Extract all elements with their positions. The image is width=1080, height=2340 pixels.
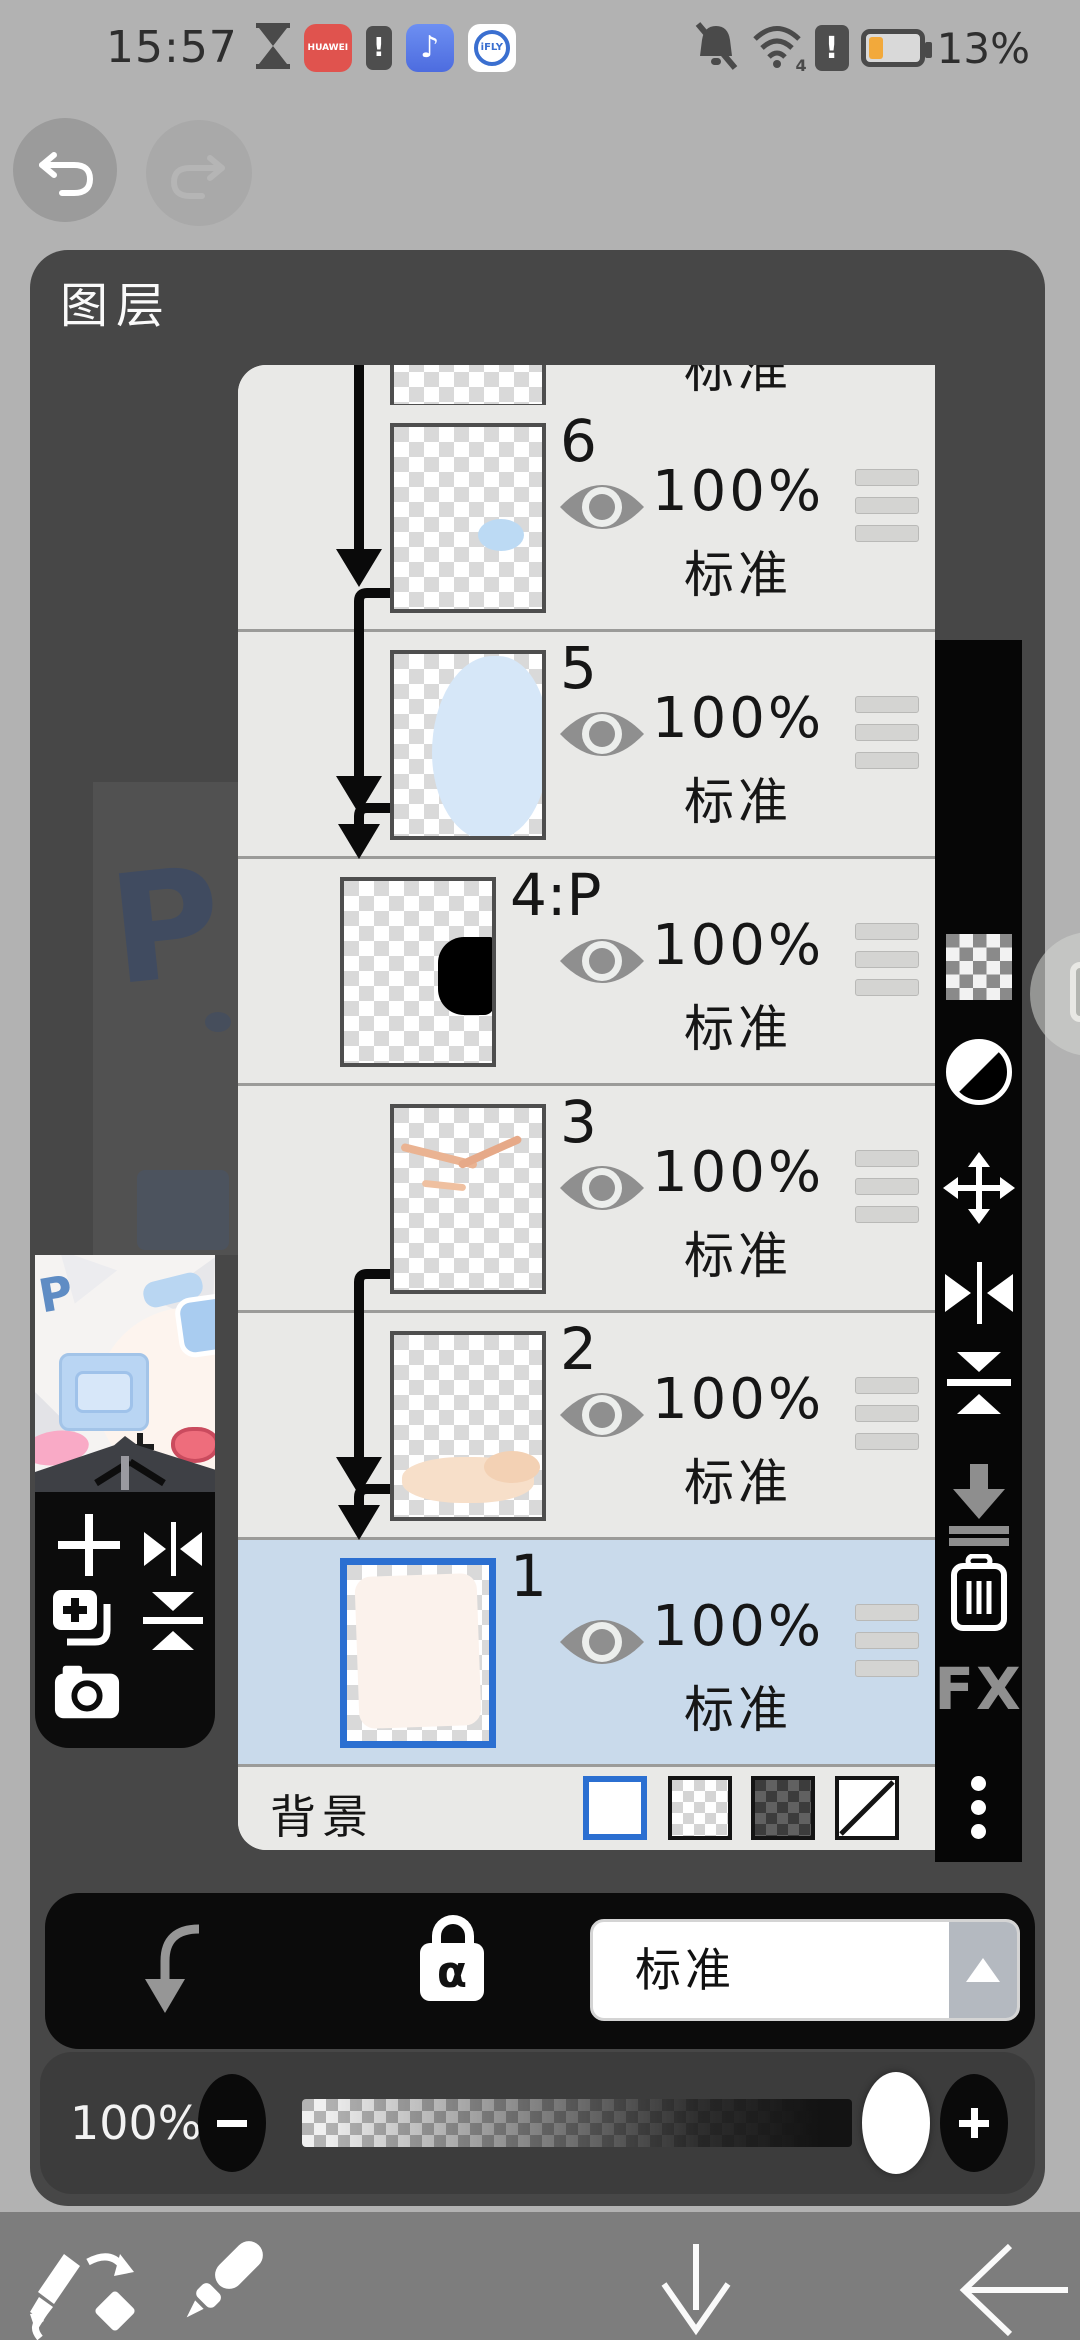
layer-thumbnail[interactable]: [390, 423, 546, 613]
opacity-minus-button[interactable]: [198, 2074, 266, 2172]
app-screen: 15:57 HUAWEI ! ♪ iFLY 4 ! 13% 图层 P: [0, 0, 1080, 2340]
down-arrow-icon: [648, 2240, 744, 2340]
layer-row-partial[interactable]: 标准: [238, 365, 935, 405]
merge-down-arrow-button[interactable]: [133, 1921, 205, 2023]
trash-icon: [946, 1554, 1012, 1632]
ifly-app-icon: iFLY: [468, 24, 516, 72]
merge-down-icon: [947, 1464, 1011, 1546]
duplicate-layer-icon: [51, 1588, 119, 1650]
drag-handle-icon[interactable]: [855, 1150, 919, 1223]
more-options-icon: [971, 1767, 986, 1848]
layer-opacity-label: 100%: [633, 913, 843, 978]
merge-vertical-icon: [947, 1352, 1011, 1414]
bottom-toolbar: 205.0: [0, 2212, 1080, 2340]
transparency-checker-button[interactable]: [943, 934, 1015, 1000]
brush-icon: [168, 2228, 276, 2336]
flip-horizontal-button[interactable]: [943, 1262, 1015, 1324]
dropdown-caret-button[interactable]: [949, 1922, 1017, 2018]
opacity-slider-knob[interactable]: [862, 2072, 930, 2174]
layer-blend-label: 标准: [633, 762, 843, 834]
huawei-app-icon: HUAWEI: [304, 24, 352, 72]
canvas-behind-panel: P: [93, 782, 238, 1255]
battery-icon: [861, 29, 925, 67]
contrast-circle-icon: [946, 1039, 1012, 1105]
drag-handle-icon[interactable]: [855, 923, 919, 996]
layer-row-6[interactable]: 6100%标准: [238, 405, 935, 632]
notifications-muted-icon: [693, 22, 739, 74]
layer-number: 5: [560, 634, 597, 702]
background-row[interactable]: 背景: [238, 1767, 935, 1850]
camera-import-button[interactable]: [53, 1660, 121, 1726]
merge-down-arrow-icon: [133, 1921, 205, 2019]
drag-handle-icon[interactable]: [855, 696, 919, 769]
move-icon: [943, 1152, 1015, 1224]
canvas-artwork-letter: P: [102, 835, 230, 1020]
battery-percent: 13%: [937, 24, 1030, 73]
move-down-button[interactable]: [648, 2240, 744, 2340]
flip-horizontal-icon: [142, 1522, 204, 1576]
canvas-preview: P: [35, 1255, 215, 1492]
wifi-icon: 4: [751, 23, 803, 73]
layer-thumbnail[interactable]: [390, 365, 546, 405]
layer-row-partial-clip[interactable]: 标准: [238, 365, 935, 405]
fx-button[interactable]: FX: [943, 1655, 1015, 1723]
layer-row-4-P[interactable]: 4:P100%标准: [238, 859, 935, 1086]
flip-horizontal-button[interactable]: [139, 1516, 207, 1582]
transparency-checker-icon: [946, 934, 1012, 1000]
caret-up-icon: [966, 1958, 1000, 1982]
status-bar-left: 15:57 HUAWEI ! ♪ iFLY: [106, 22, 516, 73]
back-button[interactable]: [952, 2240, 1072, 2340]
back-arrow-icon: [952, 2240, 1072, 2340]
layer-opacity-label: 100%: [633, 686, 843, 751]
layer-number: 1: [510, 1542, 547, 1610]
layer-action-buttons: [35, 1492, 215, 1748]
camera-import-icon: [53, 1665, 121, 1721]
merge-down-button[interactable]: [943, 1464, 1015, 1546]
background-option-white[interactable]: [583, 1776, 647, 1840]
layer-thumbnail[interactable]: [390, 1331, 546, 1521]
merge-layers-icon: [143, 1592, 203, 1650]
layer-row-3[interactable]: 3100%标准: [238, 1086, 935, 1313]
undo-button[interactable]: [13, 118, 117, 222]
drag-handle-icon[interactable]: [855, 469, 919, 542]
layer-side-toolbar: FX: [935, 640, 1022, 1862]
drag-handle-icon[interactable]: [855, 1377, 919, 1450]
layer-blend-label: 标准: [633, 535, 843, 607]
opacity-value-label: 100%: [70, 2052, 202, 2194]
background-label: 背景: [270, 1781, 374, 1847]
background-option-diagonal[interactable]: [835, 1776, 899, 1840]
merge-layers-button[interactable]: [139, 1588, 207, 1654]
blend-mode-value: 标准: [635, 1922, 735, 2018]
layer-thumbnail[interactable]: [340, 1558, 496, 1748]
blend-mode-select[interactable]: 标准: [590, 1919, 1020, 2021]
layer-opacity-label: 100%: [633, 1367, 843, 1432]
add-layer-icon: [56, 1512, 122, 1578]
layer-blend-label: 标准: [633, 365, 843, 402]
blend-bar: α 标准: [45, 1893, 1035, 2049]
handle-grip-icon: [1070, 962, 1080, 1022]
layer-row-2[interactable]: 2100%标准: [238, 1313, 935, 1540]
layer-blend-label: 标准: [633, 1443, 843, 1515]
sim-alert-icon: !: [366, 26, 392, 70]
undo-icon: [34, 141, 96, 199]
layer-thumbnail[interactable]: [390, 650, 546, 840]
lock-shackle-icon: [432, 1915, 474, 1945]
layer-thumbnail[interactable]: [340, 877, 496, 1067]
layer-thumbnail[interactable]: [390, 1104, 546, 1294]
tool-swap-icon: [22, 2240, 152, 2340]
flip-horizontal-icon: [943, 1262, 1015, 1324]
layers-list: 标准6100%标准5100%标准4:P100%标准3100%标准2100%标准1…: [238, 365, 935, 1850]
layer-row-1[interactable]: 1100%标准: [238, 1540, 935, 1767]
layer-opacity-label: 100%: [633, 459, 843, 524]
background-option-checker-light[interactable]: [668, 1776, 732, 1840]
sim-alert-icon: !: [815, 25, 849, 71]
layer-blend-label: 标准: [633, 1670, 843, 1742]
alpha-symbol: α: [437, 1947, 467, 1998]
opacity-slider-track[interactable]: [302, 2099, 852, 2147]
layer-opacity-label: 100%: [633, 1140, 843, 1205]
more-options-button[interactable]: [943, 1767, 1015, 1848]
panel-title: 图层: [60, 266, 172, 336]
layer-row-5[interactable]: 5100%标准: [238, 632, 935, 859]
opacity-bar: 100%: [40, 2052, 1035, 2194]
duplicate-layer-button[interactable]: [51, 1586, 119, 1652]
status-bar-right: 4 ! 13%: [693, 22, 1030, 74]
merge-vertical-button[interactable]: [943, 1352, 1015, 1414]
layers-panel: 图层 P P 标准6100%标准5100%标准4:P100%标准3100%标准2…: [30, 250, 1045, 2206]
layer-opacity-label: 100%: [633, 1594, 843, 1659]
drag-handle-icon[interactable]: [855, 1604, 919, 1677]
add-layer-button[interactable]: [55, 1512, 123, 1578]
layer-number: 4:P: [510, 861, 601, 929]
background-option-checker-dark[interactable]: [751, 1776, 815, 1840]
redo-icon: [168, 144, 230, 202]
move-button[interactable]: [943, 1152, 1015, 1224]
music-app-icon: ♪: [406, 24, 454, 72]
clip-arrow-icon: [354, 365, 364, 405]
layer-blend-label: 标准: [633, 1216, 843, 1288]
redo-button[interactable]: [146, 120, 252, 226]
layer-number: 2: [560, 1315, 597, 1383]
hourglass-icon: [256, 23, 290, 73]
layer-number: 3: [560, 1088, 597, 1156]
trash-button[interactable]: [943, 1554, 1015, 1632]
contrast-circle-button[interactable]: [943, 1039, 1015, 1105]
fx-icon: FX: [934, 1655, 1022, 1723]
brush-tool-button[interactable]: [168, 2228, 276, 2336]
opacity-plus-button[interactable]: [940, 2074, 1008, 2172]
clock: 15:57: [106, 22, 238, 73]
tool-swap-button[interactable]: [22, 2240, 152, 2340]
alpha-lock-button[interactable]: α: [420, 1915, 486, 2001]
layer-number: 6: [560, 407, 597, 475]
layer-blend-label: 标准: [633, 989, 843, 1061]
